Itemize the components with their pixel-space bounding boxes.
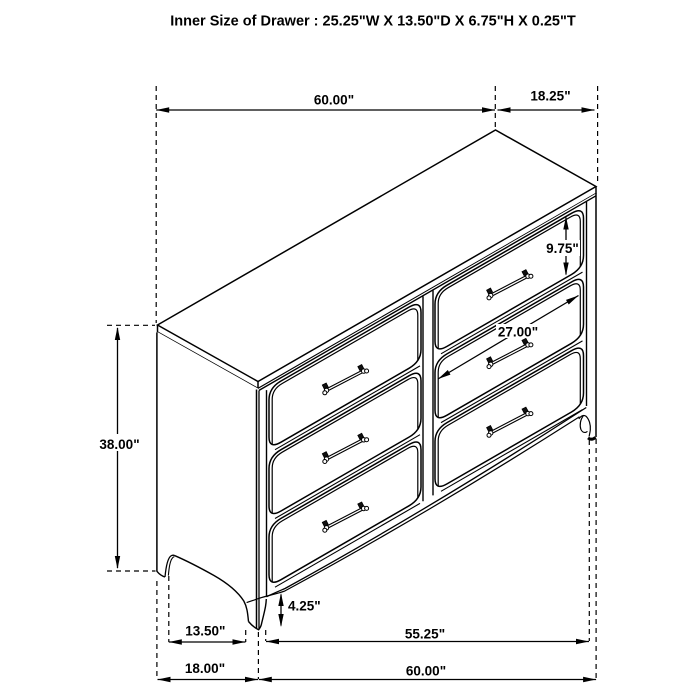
svg-text:9.75": 9.75" [546, 241, 579, 256]
svg-text:27.00": 27.00" [498, 324, 538, 339]
svg-text:Inner Size of Drawer : 25.25"W: Inner Size of Drawer : 25.25"W X 13.50"D… [170, 14, 576, 30]
svg-text:60.00": 60.00" [406, 664, 446, 679]
svg-text:4.25": 4.25" [288, 599, 321, 614]
svg-text:13.50": 13.50" [185, 624, 225, 639]
svg-text:18.00": 18.00" [185, 661, 225, 676]
svg-text:18.25": 18.25" [530, 89, 570, 104]
svg-text:60.00": 60.00" [314, 93, 354, 108]
svg-text:38.00": 38.00" [99, 437, 139, 452]
svg-text:55.25": 55.25" [405, 627, 445, 642]
